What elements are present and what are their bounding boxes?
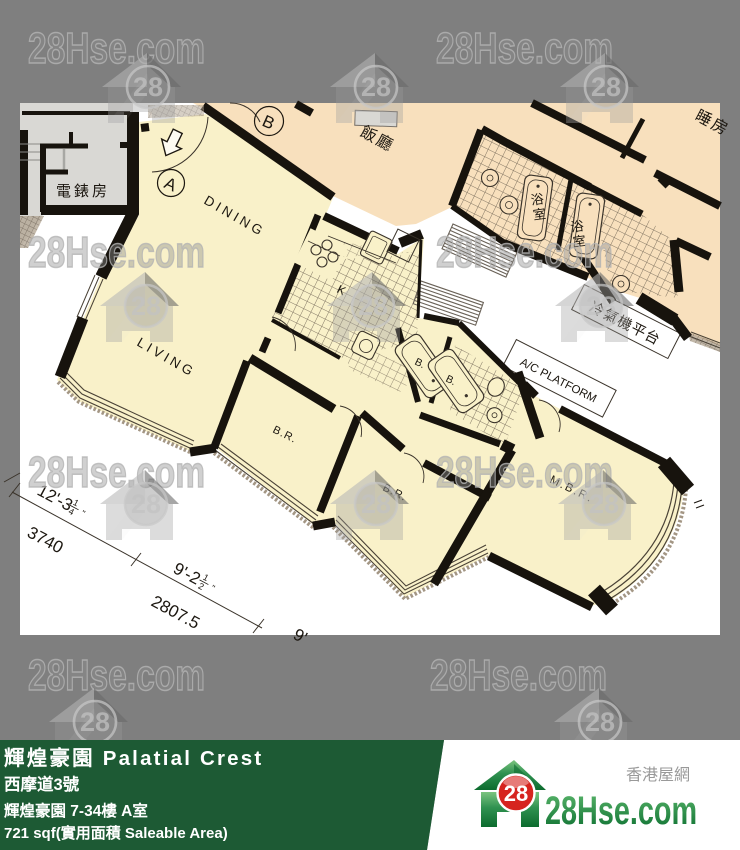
svg-text:28Hse.com: 28Hse.com xyxy=(28,24,205,73)
svg-text:28Hse.com: 28Hse.com xyxy=(436,228,613,277)
svg-text:電錶房: 電錶房 xyxy=(56,183,110,200)
svg-text:浴: 浴 xyxy=(530,191,545,208)
svg-text:西摩道3號: 西摩道3號 xyxy=(4,774,80,794)
svg-text:28Hse.com: 28Hse.com xyxy=(436,24,613,73)
svg-text:28Hse.com: 28Hse.com xyxy=(28,448,205,497)
svg-text:輝煌豪園 7-34樓 A室: 輝煌豪園 7-34樓 A室 xyxy=(4,801,148,820)
svg-text:28: 28 xyxy=(504,781,528,806)
svg-text:28Hse.com: 28Hse.com xyxy=(545,788,697,833)
svg-text:室: 室 xyxy=(532,206,547,223)
svg-text:28Hse.com: 28Hse.com xyxy=(28,651,205,700)
svg-text:28Hse.com: 28Hse.com xyxy=(28,228,205,277)
svg-text:28Hse.com: 28Hse.com xyxy=(430,651,607,700)
svg-text:輝煌豪園 Palatial Crest: 輝煌豪園 Palatial Crest xyxy=(4,746,263,770)
svg-text:香港屋網: 香港屋網 xyxy=(626,766,690,784)
svg-text:721 sqf(實用面積 Saleable Area): 721 sqf(實用面積 Saleable Area) xyxy=(4,824,228,842)
